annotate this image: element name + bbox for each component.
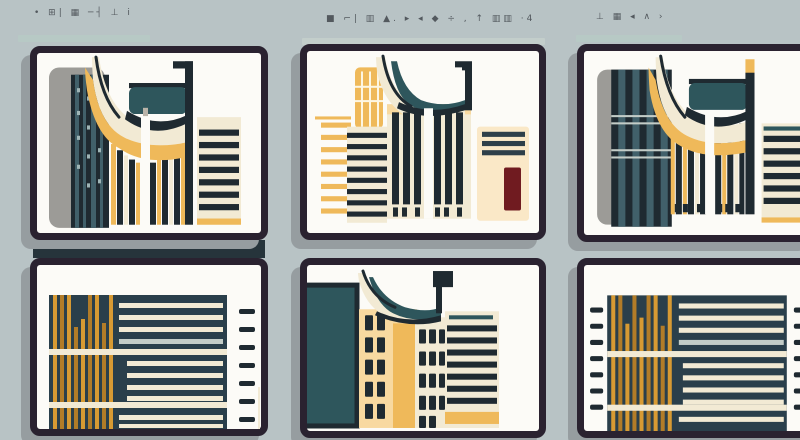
door-panel-illustration	[307, 285, 357, 426]
gold-stripe-rows	[315, 116, 351, 213]
card-stand-bar	[33, 240, 265, 258]
thumbnail-card-bottom-left[interactable]	[30, 258, 268, 436]
dark-striped-building-illustration	[347, 127, 387, 223]
illustration-gallery: • ⊞| ▦ ─┤ ⊥ i ■ ⌐| ▥ ▲. ▸ ◂ ◆ ÷ , ↑ ▥▥ ·…	[0, 0, 800, 440]
thumbnail-card-top-middle[interactable]	[300, 44, 546, 240]
curved-roof-facade-illustration	[358, 271, 453, 428]
thumbnail-card-top-right[interactable]	[577, 44, 800, 242]
illustration-bottom-right	[584, 265, 800, 431]
dash-list-illustration	[239, 309, 260, 429]
illustration-top-middle	[307, 51, 539, 233]
caption-glyphs-right: ⊥ ▦ ◂ ∧ ›	[596, 12, 666, 22]
dark-panel-illustration	[49, 295, 227, 429]
illustration-top-right	[584, 51, 800, 235]
caption-glyphs-middle: ■ ⌐| ▥ ▲. ▸ ◂ ◆ ÷ , ↑ ▥▥ ·4	[326, 14, 535, 24]
illustration-top-left	[37, 53, 261, 233]
dash-list-left-illustration	[590, 308, 603, 410]
dark-panel-illustration	[607, 295, 787, 431]
caption-glyphs-left: • ⊞| ▦ ─┤ ⊥ i	[34, 8, 133, 18]
illustration-bottom-left	[37, 265, 261, 429]
sign-panel-illustration	[477, 127, 529, 221]
thumbnail-card-bottom-right[interactable]	[577, 258, 800, 438]
dash-list-right-illustration	[794, 308, 800, 410]
curved-roof-building-illustration	[376, 56, 472, 219]
accent-underline-right	[576, 35, 682, 42]
illustration-bottom-middle	[307, 265, 539, 431]
accent-underline-left	[18, 35, 150, 42]
striped-block-building-illustration	[445, 311, 499, 428]
striped-block-building-illustration	[197, 117, 241, 225]
thumbnail-card-top-left[interactable]	[30, 46, 268, 240]
thumbnail-card-bottom-middle[interactable]	[300, 258, 546, 438]
striped-block-building-illustration	[762, 123, 800, 222]
